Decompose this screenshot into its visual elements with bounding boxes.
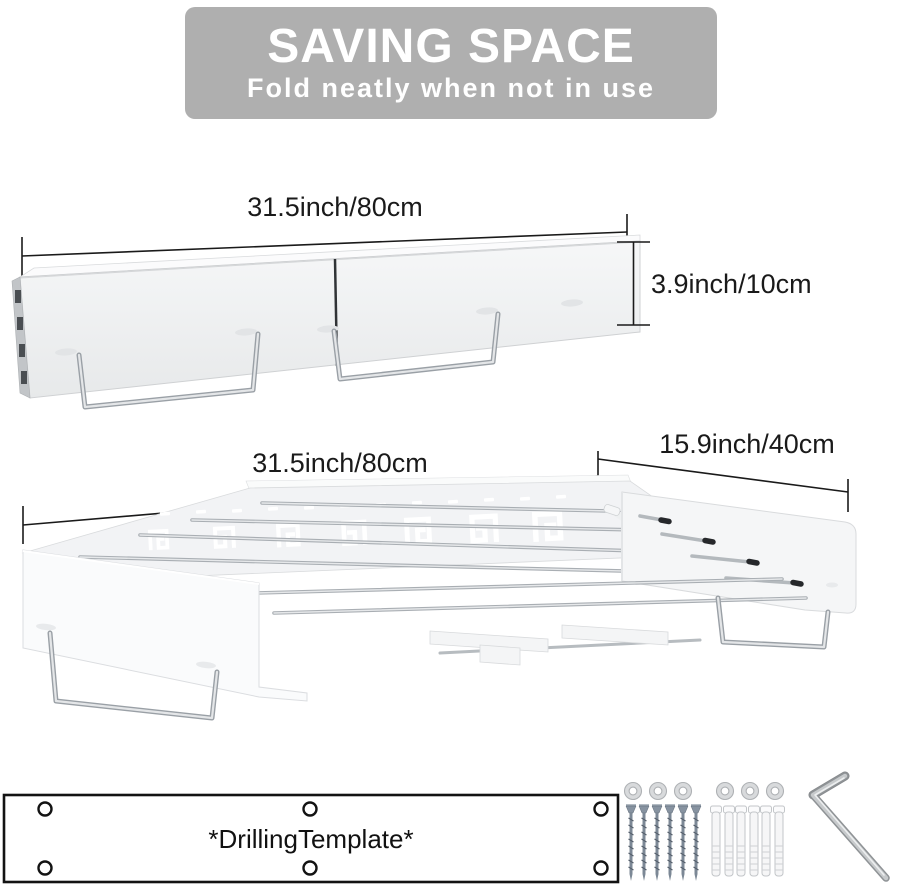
folded-height-label: 3.9inch/10cm bbox=[651, 269, 812, 300]
unfolded-rack-illustration bbox=[0, 435, 900, 780]
banner-title: SAVING SPACE bbox=[267, 22, 635, 72]
anchor-rings-icon bbox=[717, 783, 784, 800]
wall-anchors-icon bbox=[711, 806, 785, 876]
unfolded-width-label: 31.5inch/80cm bbox=[190, 448, 490, 479]
unfolded-depth-label: 15.9inch/40cm bbox=[622, 429, 872, 460]
product-infographic: SAVING SPACE Fold neatly when not in use bbox=[0, 0, 900, 890]
banner-subtitle: Fold neatly when not in use bbox=[247, 74, 655, 104]
washer-rings-icon bbox=[625, 783, 692, 800]
mounting-screws-icon bbox=[626, 806, 636, 882]
banner: SAVING SPACE Fold neatly when not in use bbox=[185, 7, 717, 119]
folded-width-label: 31.5inch/80cm bbox=[185, 192, 485, 223]
folded-bar bbox=[12, 235, 640, 398]
support-brackets bbox=[430, 625, 668, 665]
right-side-panel bbox=[622, 492, 856, 613]
mounting-screws-copies bbox=[639, 806, 701, 882]
allen-wrench-icon bbox=[813, 776, 886, 878]
drilling-template-label: *DrillingTemplate* bbox=[161, 824, 461, 855]
